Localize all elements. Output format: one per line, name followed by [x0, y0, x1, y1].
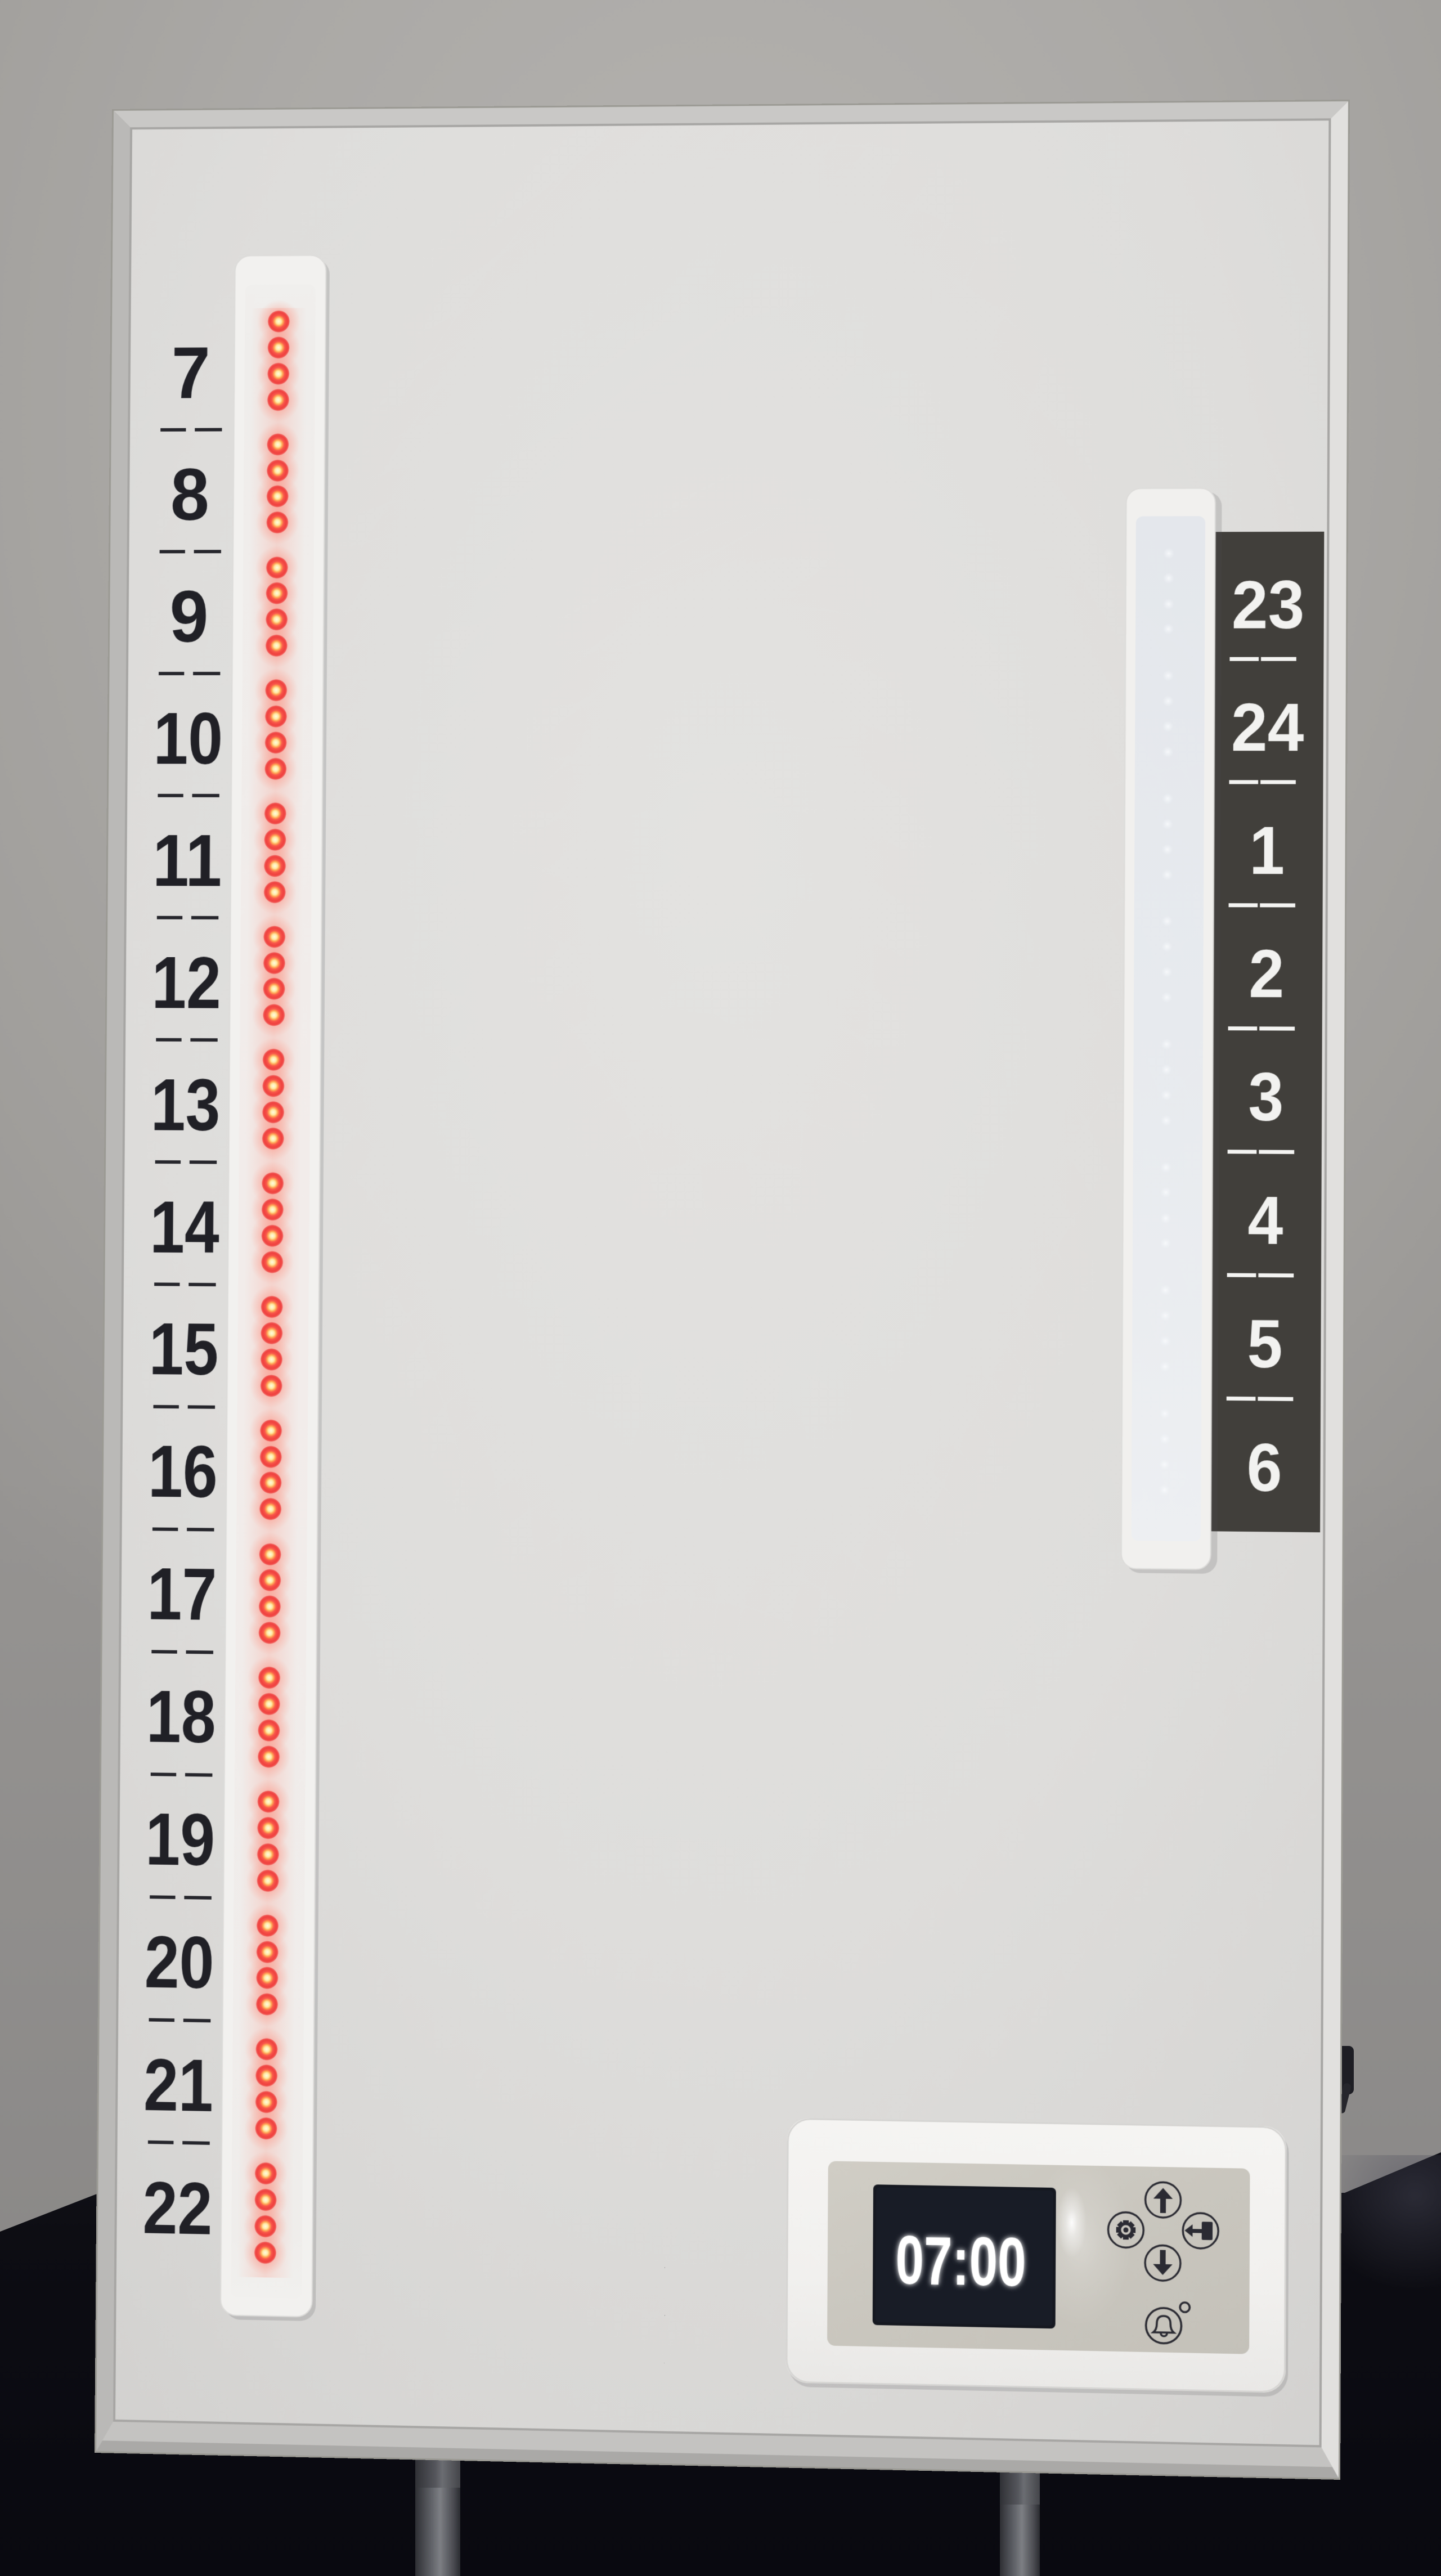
svg-text:9: 9 — [169, 576, 209, 658]
svg-text:18: 18 — [146, 1676, 217, 1758]
svg-text:5: 5 — [1247, 1305, 1282, 1382]
svg-text:24: 24 — [1231, 689, 1304, 765]
svg-text:19: 19 — [145, 1798, 216, 1882]
svg-text:15: 15 — [149, 1308, 218, 1391]
svg-text:14: 14 — [150, 1187, 219, 1269]
svg-text:20: 20 — [144, 1921, 214, 2004]
svg-text:4: 4 — [1247, 1182, 1283, 1259]
svg-text:12: 12 — [151, 942, 221, 1024]
svg-text:22: 22 — [142, 2167, 213, 2251]
svg-text:3: 3 — [1248, 1059, 1283, 1135]
svg-text:2: 2 — [1249, 936, 1284, 1012]
svg-text:11: 11 — [152, 820, 222, 901]
svg-text:10: 10 — [153, 698, 223, 780]
svg-text:1: 1 — [1249, 813, 1285, 888]
svg-text:23: 23 — [1232, 567, 1305, 643]
svg-text:16: 16 — [148, 1430, 218, 1513]
svg-text:07:00: 07:00 — [895, 2222, 1026, 2300]
svg-text:8: 8 — [170, 454, 210, 536]
svg-text:21: 21 — [143, 2044, 214, 2127]
svg-text:17: 17 — [147, 1553, 217, 1636]
svg-text:13: 13 — [151, 1064, 221, 1146]
svg-text:6: 6 — [1246, 1429, 1282, 1506]
svg-text:7: 7 — [171, 333, 210, 414]
